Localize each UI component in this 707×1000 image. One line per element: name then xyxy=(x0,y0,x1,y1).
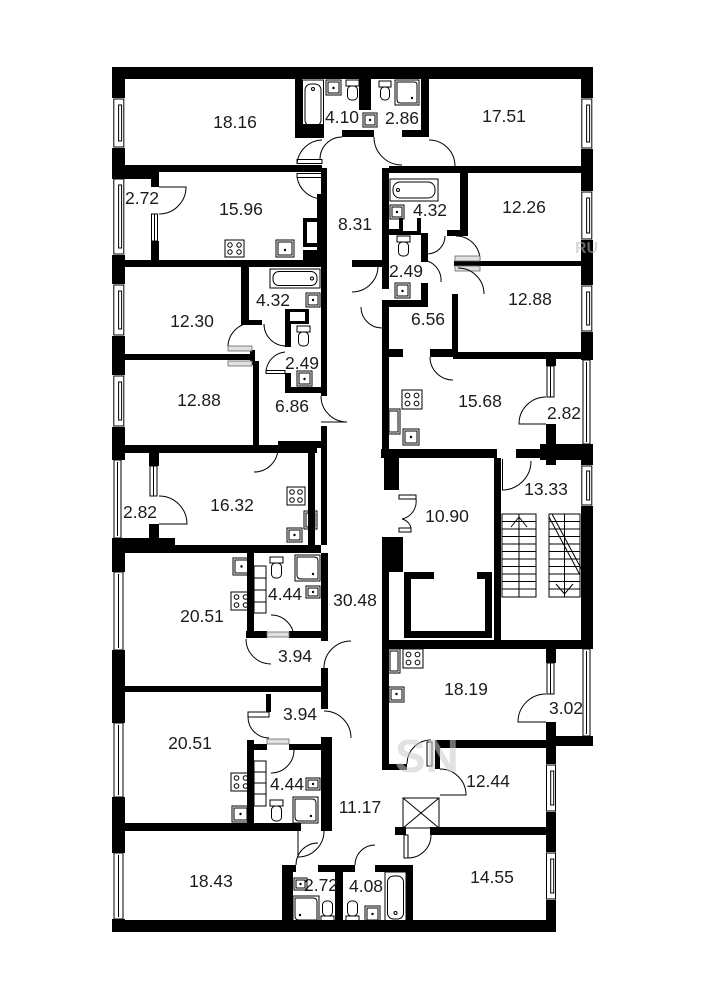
svg-text:3.94: 3.94 xyxy=(278,646,312,666)
svg-text:15.96: 15.96 xyxy=(219,199,263,219)
svg-text:18.19: 18.19 xyxy=(444,679,488,699)
svg-text:12.30: 12.30 xyxy=(170,311,214,331)
svg-text:12.44: 12.44 xyxy=(466,771,510,791)
svg-text:13.33: 13.33 xyxy=(524,479,568,499)
svg-text:2.72: 2.72 xyxy=(304,875,338,895)
svg-text:14.55: 14.55 xyxy=(470,867,514,887)
svg-text:12.26: 12.26 xyxy=(502,197,546,217)
svg-text:2.86: 2.86 xyxy=(385,108,419,128)
svg-text:11.17: 11.17 xyxy=(339,797,382,817)
svg-text:10.90: 10.90 xyxy=(425,506,469,526)
svg-text:3.02: 3.02 xyxy=(549,698,583,718)
svg-text:4.08: 4.08 xyxy=(349,876,383,896)
svg-text:2.72: 2.72 xyxy=(125,188,159,208)
svg-text:6.56: 6.56 xyxy=(411,309,445,329)
svg-text:4.32: 4.32 xyxy=(256,290,290,310)
svg-text:12.88: 12.88 xyxy=(508,289,552,309)
svg-text:2.49: 2.49 xyxy=(389,261,423,281)
svg-text:4.32: 4.32 xyxy=(413,200,447,220)
svg-text:30.48: 30.48 xyxy=(333,590,377,610)
svg-text:4.44: 4.44 xyxy=(270,774,304,794)
svg-text:3.94: 3.94 xyxy=(283,704,317,724)
svg-text:RU: RU xyxy=(575,240,598,257)
svg-text:4.44: 4.44 xyxy=(268,584,302,604)
svg-text:15.68: 15.68 xyxy=(458,391,502,411)
svg-text:16.32: 16.32 xyxy=(210,495,254,515)
svg-text:6.86: 6.86 xyxy=(275,396,309,416)
svg-text:2.82: 2.82 xyxy=(547,403,581,423)
svg-text:12.88: 12.88 xyxy=(177,390,221,410)
svg-text:18.16: 18.16 xyxy=(213,112,257,132)
svg-text:20.51: 20.51 xyxy=(180,606,224,626)
svg-text:18.43: 18.43 xyxy=(189,871,233,891)
svg-text:SN: SN xyxy=(395,730,459,782)
svg-text:2.82: 2.82 xyxy=(123,502,157,522)
svg-text:2.49: 2.49 xyxy=(285,353,319,373)
svg-text:8.31: 8.31 xyxy=(338,214,372,234)
svg-text:17.51: 17.51 xyxy=(482,106,526,126)
svg-text:4.10: 4.10 xyxy=(325,107,359,127)
svg-text:20.51: 20.51 xyxy=(168,733,212,753)
